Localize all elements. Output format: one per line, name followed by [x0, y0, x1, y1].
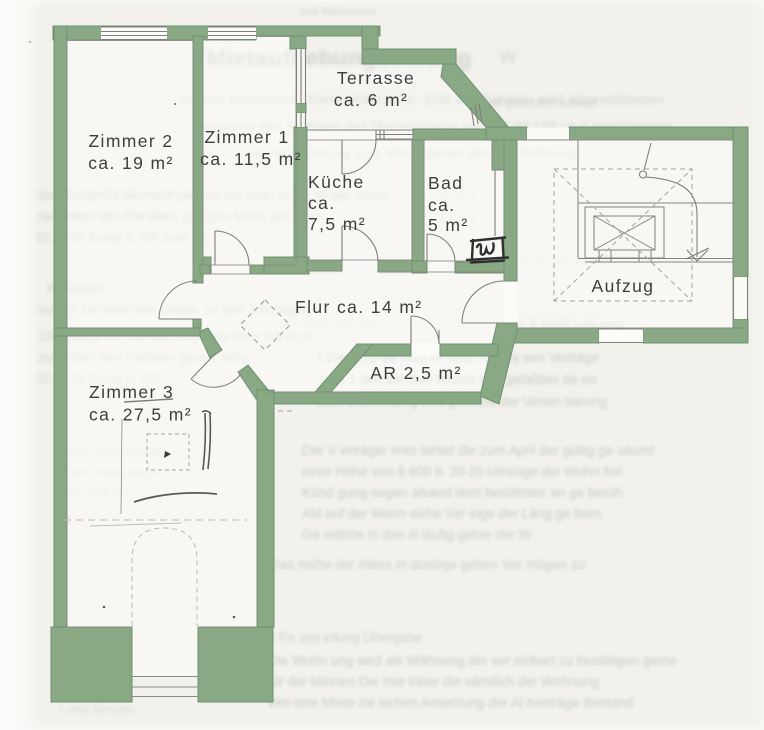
svg-text:Bad: Bad — [428, 173, 463, 193]
svg-text:AR 2,5 m²: AR 2,5 m² — [370, 363, 461, 383]
svg-text:5 m²: 5 m² — [428, 215, 469, 235]
svg-text:ca. 6 m²: ca. 6 m² — [334, 90, 408, 110]
svg-text:ca.: ca. — [308, 193, 336, 213]
svg-text:Küche: Küche — [308, 172, 365, 192]
svg-text:Terrasse: Terrasse — [337, 68, 415, 88]
svg-text:Zimmer 2: Zimmer 2 — [88, 131, 173, 151]
svg-text:7,5 m²: 7,5 m² — [308, 214, 366, 234]
svg-text:ca. 27,5 m²: ca. 27,5 m² — [89, 405, 192, 425]
svg-text:ca. 19 m²: ca. 19 m² — [88, 153, 174, 173]
svg-text:Zimmer 3: Zimmer 3 — [89, 382, 174, 402]
svg-text:ca. 11,5 m²: ca. 11,5 m² — [200, 149, 302, 169]
svg-text:ca.: ca. — [428, 195, 456, 215]
svg-text:Zimmer 1: Zimmer 1 — [204, 127, 289, 147]
svg-text:Flur ca. 14 m²: Flur ca. 14 m² — [295, 297, 423, 317]
svg-text:Aufzug: Aufzug — [592, 276, 655, 296]
